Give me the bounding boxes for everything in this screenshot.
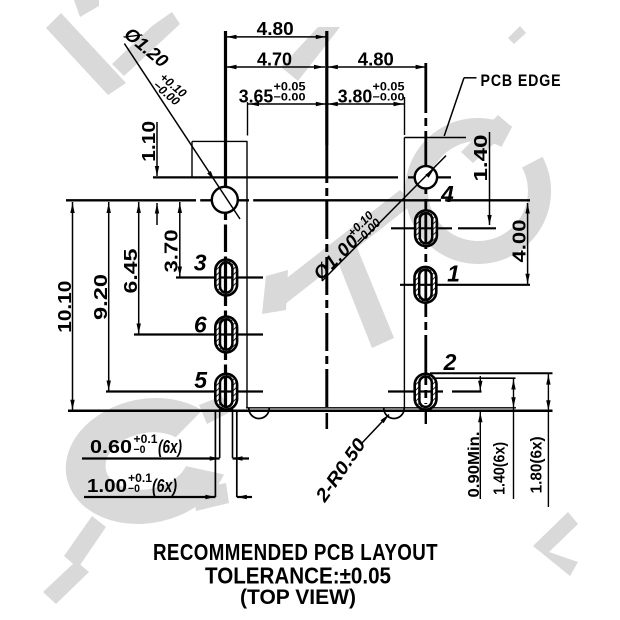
svg-text:1: 1 [447, 261, 460, 287]
svg-text:−0: −0 [128, 483, 140, 495]
svg-text:9.20: 9.20 [90, 274, 111, 320]
svg-text:6: 6 [194, 311, 207, 337]
svg-text:3.80: 3.80 [338, 86, 373, 107]
svg-text:3.65: 3.65 [239, 86, 274, 107]
svg-text:PCB EDGE: PCB EDGE [481, 72, 562, 90]
svg-text:3.70: 3.70 [161, 230, 182, 273]
svg-text:−0.00: −0.00 [373, 91, 405, 103]
svg-text:1.40(6x): 1.40(6x) [492, 442, 509, 495]
svg-text:0.90Min.: 0.90Min. [466, 432, 483, 498]
svg-text:RECOMMENDED PCB LAYOUT: RECOMMENDED PCB LAYOUT [153, 539, 438, 565]
svg-text:4.80: 4.80 [358, 48, 394, 69]
svg-text:4.00: 4.00 [509, 220, 530, 263]
svg-text:3: 3 [194, 249, 207, 275]
svg-text:4.70: 4.70 [257, 48, 292, 69]
svg-text:−0: −0 [134, 444, 146, 456]
svg-text:1.00: 1.00 [87, 475, 127, 496]
svg-text:10.10: 10.10 [54, 281, 75, 333]
svg-text:4.80: 4.80 [257, 18, 294, 39]
svg-text:1.40: 1.40 [470, 135, 491, 182]
svg-text:1.80(6x): 1.80(6x) [529, 436, 546, 493]
svg-text:2: 2 [443, 349, 457, 375]
svg-text:0.60: 0.60 [90, 436, 132, 457]
svg-text:6.45: 6.45 [120, 249, 141, 294]
svg-text:5: 5 [194, 367, 208, 393]
svg-text:1.10: 1.10 [138, 121, 159, 162]
svg-text:(6x): (6x) [152, 475, 177, 496]
svg-text:(TOP VIEW): (TOP VIEW) [240, 585, 356, 609]
svg-text:4: 4 [440, 181, 454, 207]
svg-text:−0.00: −0.00 [274, 91, 306, 103]
svg-text:(6x): (6x) [158, 436, 182, 457]
